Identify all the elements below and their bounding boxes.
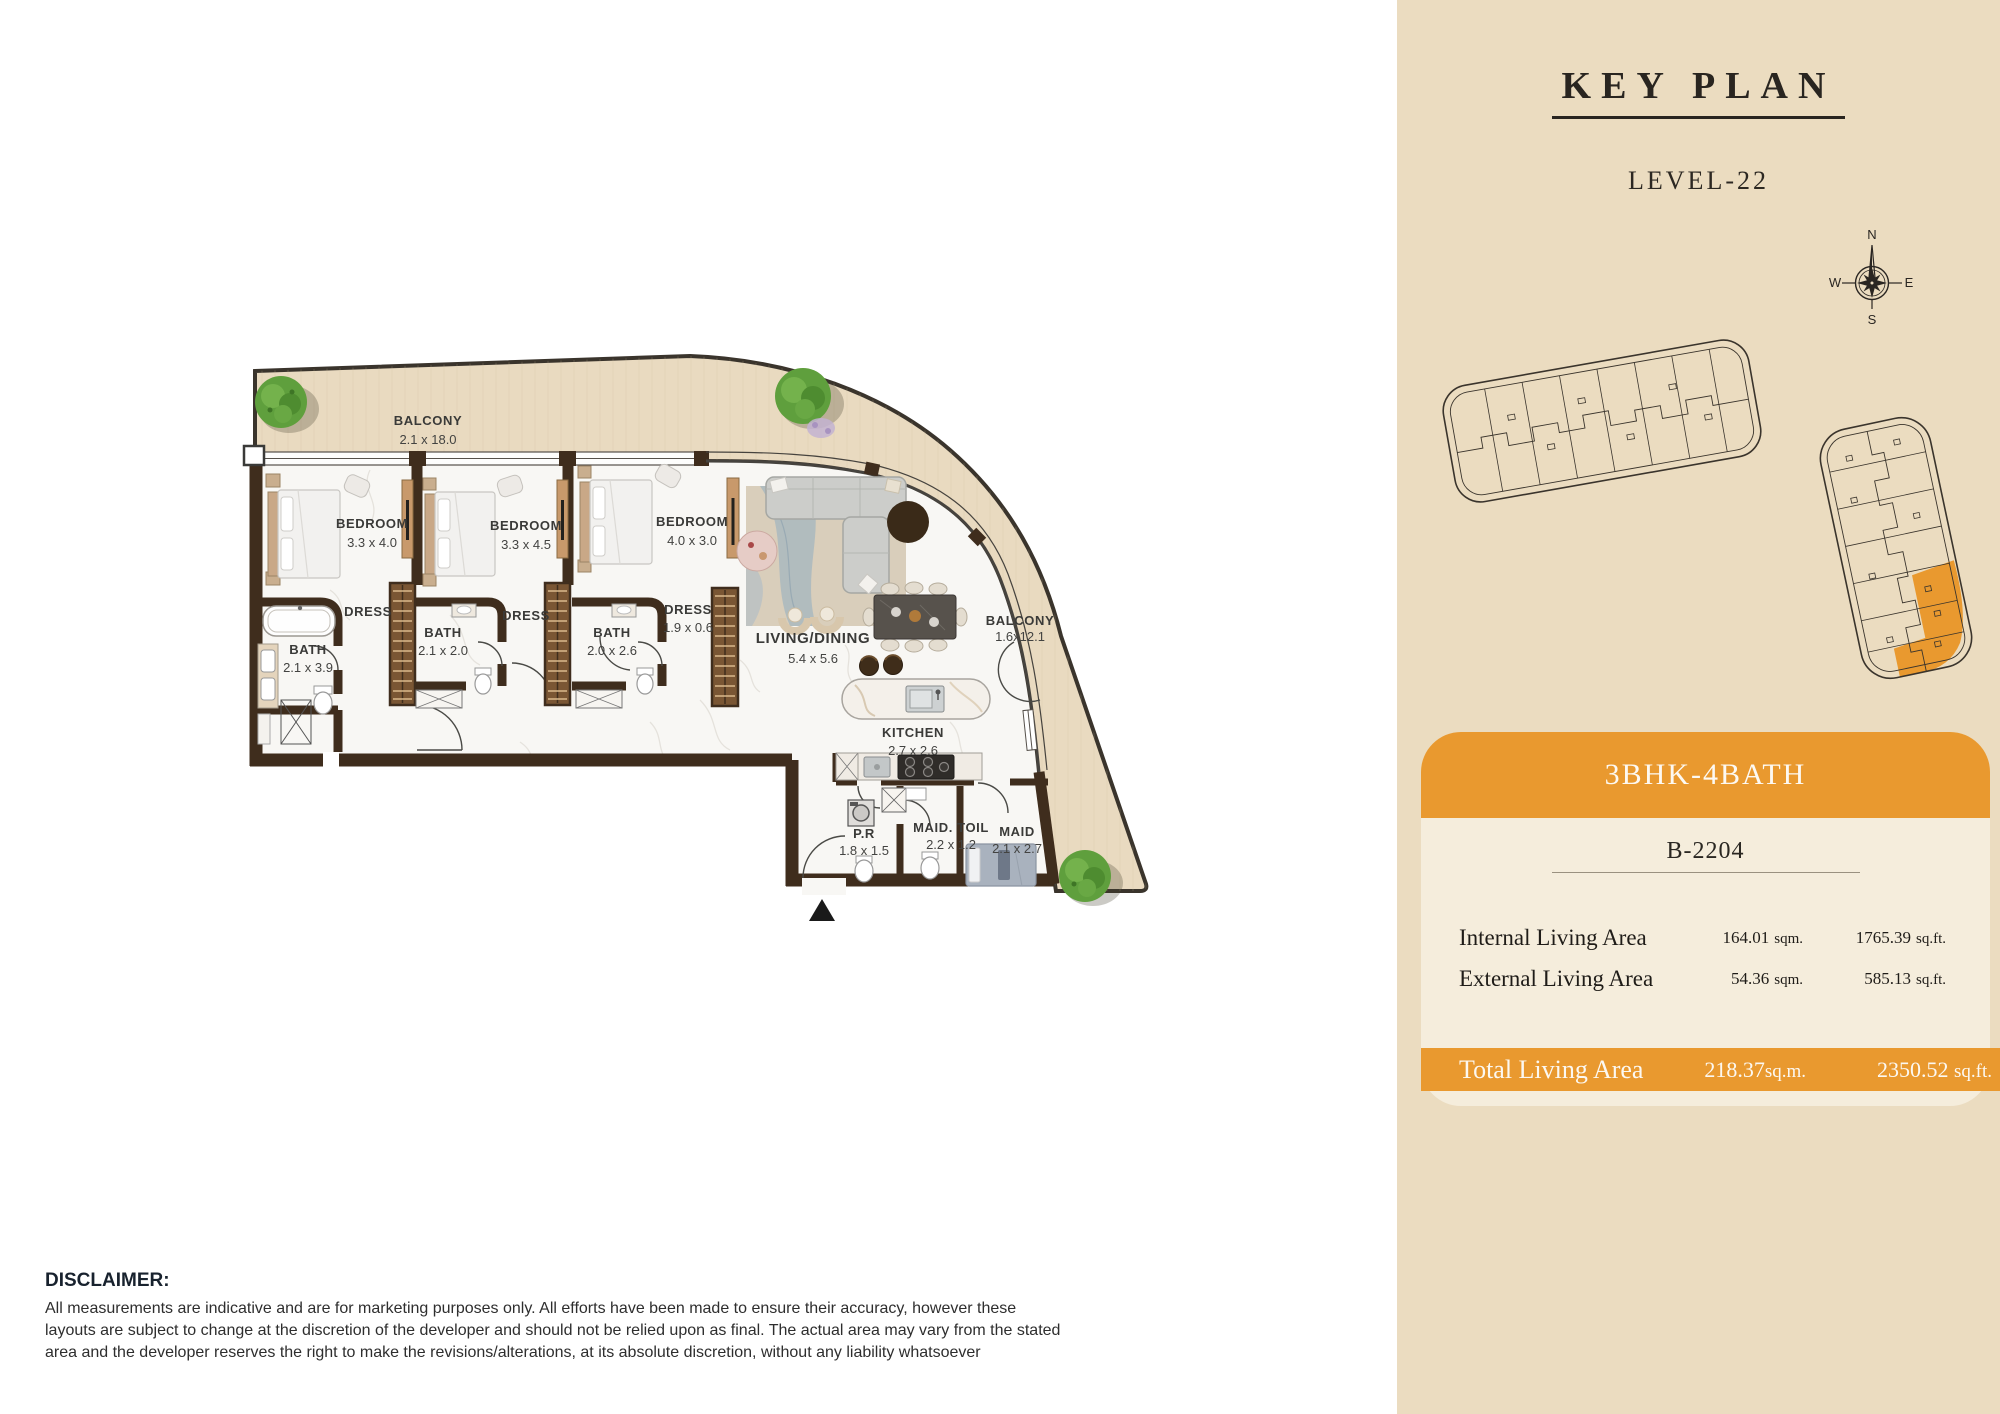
divider	[1552, 872, 1860, 873]
room-label: MAID. TOIL	[913, 820, 989, 835]
room-label: BATH	[289, 642, 327, 657]
key-plan-buildings	[1420, 320, 1990, 710]
area-label: External Living Area	[1421, 966, 1703, 992]
room-dims: 1.6x12.1	[995, 629, 1045, 644]
room-dims: 3.3 x 4.0	[347, 535, 397, 550]
building-outline-highlighted	[1815, 412, 1977, 684]
compass-east: E	[1905, 275, 1914, 290]
unit-number: B-2204	[1421, 838, 1990, 865]
room-label: BEDROOM	[656, 514, 728, 529]
disclaimer: DISCLAIMER: All measurements are indicat…	[45, 1270, 1070, 1364]
room-dims: 5.4 x 5.6	[788, 651, 838, 666]
compass-icon: N E S W	[1822, 225, 1922, 335]
entrance-marker-icon	[809, 899, 835, 921]
wall-gap	[323, 752, 339, 768]
disclaimer-title: DISCLAIMER:	[45, 1270, 1070, 1292]
room-dims: 2.1 x 18.0	[399, 432, 456, 447]
room-dims: 3.3 x 4.5	[501, 537, 551, 552]
room-dims: 1.9 x 0.6	[663, 620, 713, 635]
coffee-table	[737, 531, 777, 571]
room-label: BEDROOM	[490, 518, 562, 533]
area-sqm-value: 54.36	[1731, 969, 1769, 988]
room-dims: 4.0 x 3.0	[667, 533, 717, 548]
unit-type: 3BHK-4BATH	[1605, 758, 1807, 792]
total-label: Total Living Area	[1421, 1055, 1681, 1085]
area-row-external: External Living Area 54.36sqm. 585.13sq.…	[1421, 958, 1990, 999]
room-dims: 2.7 x 2.6	[888, 743, 938, 758]
total-sqm-unit: sq.m.	[1765, 1061, 1806, 1082]
total-living-area-bar: Total Living Area 218.37sq.m. 2350.52 sq…	[1421, 1048, 2000, 1091]
room-label: DRESS	[502, 608, 550, 623]
room-dims: 2.1 x 3.9	[283, 660, 333, 675]
compass-west: W	[1829, 275, 1842, 290]
room-dims: 2.1 x 2.7	[992, 841, 1042, 856]
room-label: MAID	[999, 824, 1035, 839]
area-sqm-unit: sqm.	[1769, 972, 1803, 988]
room-label: BEDROOM	[336, 516, 408, 531]
key-plan-panel: KEY PLAN LEVEL-22	[1397, 0, 2000, 1414]
room-label: BATH	[593, 625, 631, 640]
room-label: KITCHEN	[882, 725, 944, 740]
floor-plan: BALCONY 2.1 x 18.0 BEDROOM 3.3 x 4.0 BED…	[140, 250, 1220, 950]
room-dims: 2.1 x 2.0	[418, 643, 468, 658]
area-label: Internal Living Area	[1421, 925, 1703, 951]
room-label: DRESS	[344, 604, 392, 619]
room-dims: 2.0 x 2.6	[587, 643, 637, 658]
room-label: LIVING/DINING	[756, 630, 870, 647]
area-row-internal: Internal Living Area 164.01sqm. 1765.39s…	[1421, 917, 1990, 958]
entrance-gap	[802, 878, 846, 895]
total-sqm-value: 218.37	[1704, 1057, 1765, 1082]
building-outline	[1439, 336, 1765, 506]
area-sqm-value: 164.01	[1722, 928, 1769, 947]
round-table	[887, 501, 929, 543]
room-label: DRESS	[664, 602, 712, 617]
total-sqft-value: 2350.52	[1877, 1057, 1949, 1082]
room-dims: 2.2 x 1.2	[926, 837, 976, 852]
compass-north: N	[1867, 227, 1876, 242]
area-sqft-unit: sq.ft.	[1911, 931, 1946, 947]
room-label: BALCONY	[986, 613, 1054, 628]
bed	[578, 466, 652, 572]
area-sqft-unit: sq.ft.	[1911, 972, 1946, 988]
disclaimer-body: All measurements are indicative and are …	[45, 1298, 1070, 1364]
unit-type-header: 3BHK-4BATH	[1421, 732, 1990, 818]
page: BALCONY 2.1 x 18.0 BEDROOM 3.3 x 4.0 BED…	[0, 0, 2000, 1414]
area-sqft-value: 1765.39	[1856, 928, 1911, 947]
bed	[423, 478, 495, 586]
room-label: BATH	[424, 625, 462, 640]
room-dims: 1.8 x 1.5	[839, 843, 889, 858]
key-plan-title: KEY PLAN	[1397, 64, 2000, 119]
total-sqft-unit: sq.ft.	[1954, 1061, 1992, 1082]
area-sqm-unit: sqm.	[1769, 931, 1803, 947]
level-label: LEVEL-22	[1397, 166, 2000, 196]
area-sqft-value: 585.13	[1864, 969, 1911, 988]
room-label: P.R	[853, 826, 875, 841]
room-label: BALCONY	[394, 413, 462, 428]
